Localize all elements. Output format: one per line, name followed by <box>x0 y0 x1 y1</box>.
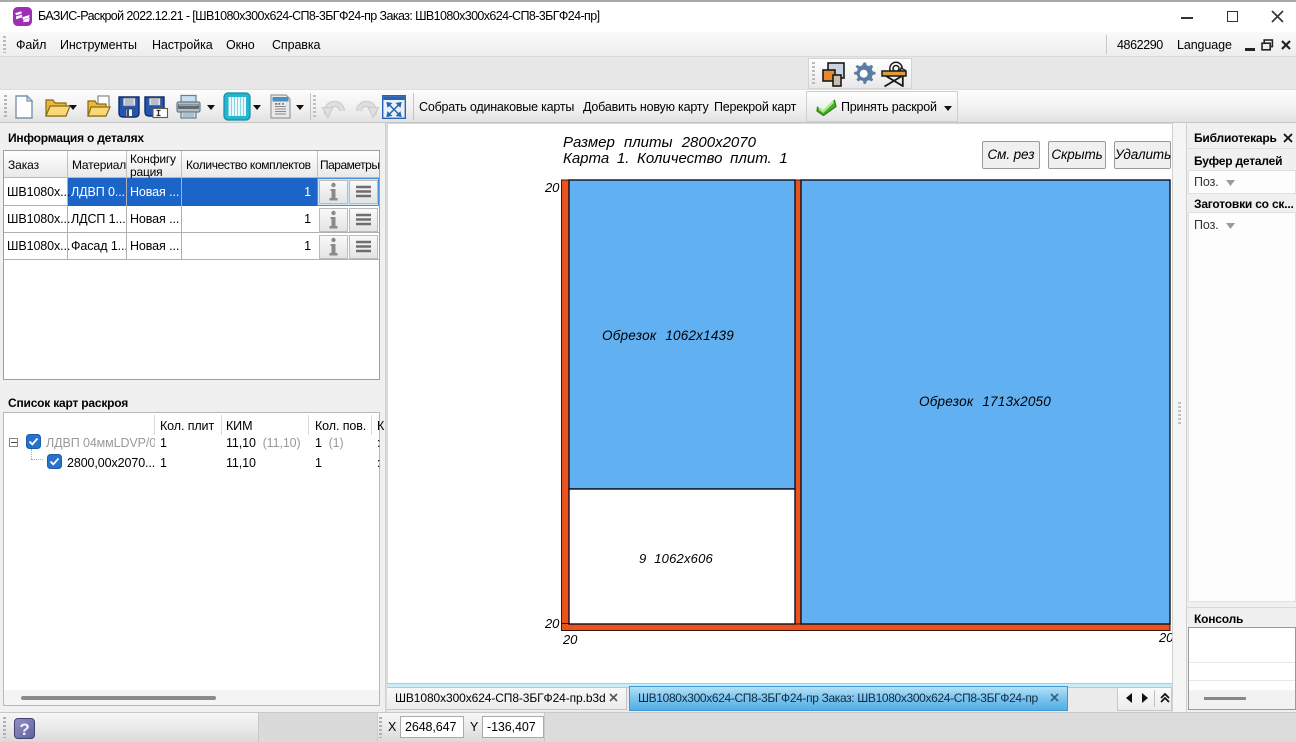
svg-text:20: 20 <box>544 180 560 195</box>
svg-text:20: 20 <box>544 616 560 631</box>
svg-text:Обрезок 1062х1439: Обрезок 1062х1439 <box>602 328 734 343</box>
svg-text:20: 20 <box>562 632 578 647</box>
svg-text:Обрезок 1713х2050: Обрезок 1713х2050 <box>919 394 1051 409</box>
svg-text:9 1062х606: 9 1062х606 <box>639 551 714 566</box>
